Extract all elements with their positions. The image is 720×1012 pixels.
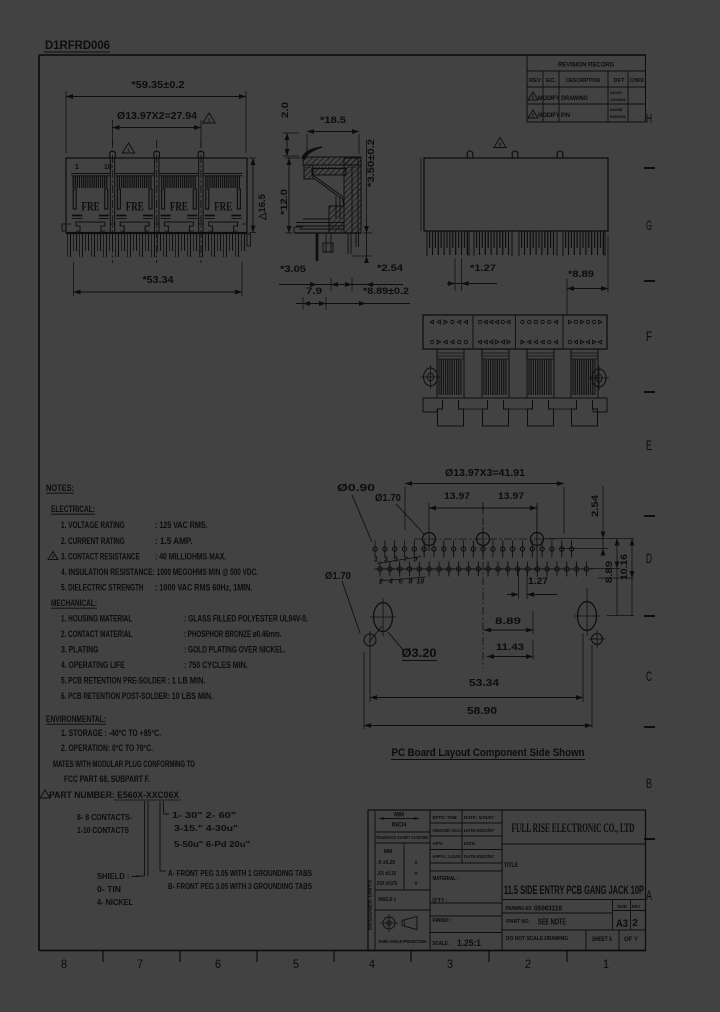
- svg-text:10: 10: [104, 164, 112, 171]
- svg-text:1-10 CONTACTS: 1-10 CONTACTS: [77, 826, 130, 835]
- svg-text:DESCRIPTION: DESCRIPTION: [566, 78, 600, 84]
- svg-text:FRE: FRE: [126, 200, 144, 214]
- svg-text:13.97: 13.97: [444, 491, 470, 502]
- svg-text:ENVIRONMENTAL:: ENVIRONMENTAL:: [46, 714, 106, 724]
- svg-text:*18.5: *18.5: [320, 115, 347, 126]
- svg-text:4: 4: [388, 579, 393, 586]
- svg-text:2: 2: [632, 918, 638, 929]
- svg-text:Q'TY :: Q'TY :: [433, 898, 448, 904]
- svg-text:ANGIE: ANGIE: [610, 107, 623, 112]
- svg-text:*8.89±0.2: *8.89±0.2: [363, 286, 409, 297]
- svg-text:5: 5: [293, 959, 299, 971]
- svg-text:2: 2: [499, 142, 502, 147]
- svg-text:11.43: 11.43: [496, 642, 524, 653]
- svg-text:*8.89: *8.89: [568, 269, 594, 280]
- svg-text:△16.5: △16.5: [257, 193, 268, 221]
- svg-text:REV: REV: [529, 78, 542, 84]
- svg-text:DESIGNED UNITS: DESIGNED UNITS: [368, 880, 373, 930]
- svg-text:7: 7: [137, 959, 143, 971]
- svg-text:CHKD: CHKD: [630, 78, 644, 84]
- svg-text:B- FRONT PEG 3.05 WITH 3 GROUN: B- FRONT PEG 3.05 WITH 3 GROUNDING TABS: [168, 882, 313, 891]
- svg-text:G: G: [646, 218, 652, 233]
- svg-text:*3.50±0.2: *3.50±0.2: [366, 139, 377, 187]
- svg-text:Ø0.90: Ø0.90: [337, 482, 375, 494]
- svg-text:1: 1: [208, 118, 211, 123]
- svg-text:D: D: [646, 551, 652, 566]
- svg-text:8.89: 8.89: [495, 616, 521, 627]
- svg-text:1: 1: [75, 164, 79, 171]
- svg-text:5-50u" 6-Pd 20u": 5-50u" 6-Pd 20u": [174, 840, 250, 849]
- svg-text:1. VOLTAGE RATING: 1. VOLTAGE RATING: [61, 520, 125, 530]
- svg-text:: 1000 VAC RMS 60Hz, 1MIN.: : 1000 VAC RMS 60Hz, 1MIN.: [155, 583, 253, 593]
- svg-text:DO NOT SCALE DRAWING: DO NOT SCALE DRAWING: [506, 936, 568, 942]
- svg-text:THIRD ANGLE PROJECTION: THIRD ANGLE PROJECTION: [378, 939, 426, 944]
- svg-text:FULL RISE ELECTRONIC CO., LTD: FULL RISE ELECTRONIC CO., LTD: [512, 821, 635, 835]
- svg-text:A3: A3: [616, 918, 628, 930]
- svg-text:11/04/04: 11/04/04: [610, 97, 626, 102]
- svg-text:53.34: 53.34: [469, 677, 499, 689]
- svg-text:05063118: 05063118: [534, 906, 562, 913]
- svg-text:REV: REV: [632, 904, 640, 909]
- svg-text:ELECTRICAL:: ELECTRICAL:: [51, 504, 95, 514]
- svg-text:SEE NOTE: SEE NOTE: [538, 917, 566, 927]
- svg-text:*2.54: *2.54: [377, 263, 404, 274]
- svg-text:D1RFRD006: D1RFRD006: [45, 38, 110, 52]
- svg-text:: 750 CYCLES MIN.: : 750 CYCLES MIN.: [184, 660, 248, 670]
- svg-text:SHIELD : —: SHIELD : —: [97, 872, 139, 881]
- svg-text:8: 8: [409, 579, 413, 586]
- svg-text:8.89: 8.89: [604, 561, 614, 583]
- svg-text:58.90: 58.90: [467, 705, 497, 717]
- svg-text:PC Board Layout Component Side: PC Board Layout Component Side Shown: [392, 747, 585, 759]
- svg-text:1: 1: [374, 557, 378, 564]
- svg-text:FCC PART 68, SUBPART F.: FCC PART 68, SUBPART F.: [64, 774, 150, 784]
- svg-text:: 1.5 AMP.: : 1.5 AMP.: [155, 536, 193, 546]
- svg-text:A- FRONT PEG 3.05 WITH 1 GROUN: A- FRONT PEG 3.05 WITH 1 GROUNDING TABS: [168, 869, 313, 878]
- svg-text:7: 7: [404, 557, 409, 564]
- svg-text:4: 4: [369, 959, 376, 971]
- svg-text:.XX ±0.15: .XX ±0.15: [377, 871, 396, 877]
- svg-text:13.97: 13.97: [498, 491, 524, 502]
- svg-text:11.5 SIDE ENTRY PCB GANG JACK: 11.5 SIDE ENTRY PCB GANG JACK 10P: [504, 885, 644, 897]
- svg-text:1: 1: [603, 959, 609, 971]
- svg-text:2. CURRENT RATING: 2. CURRENT RATING: [61, 536, 125, 546]
- svg-text:1. HOUSING MATERIAL: 1. HOUSING MATERIAL: [61, 614, 133, 624]
- svg-text:ANGLE ±: ANGLE ±: [378, 897, 396, 903]
- svg-text:/PART NO.: /PART NO.: [506, 919, 530, 925]
- svg-text:1 LB MIN.: 1 LB MIN.: [172, 676, 206, 686]
- svg-text:INCH: INCH: [392, 823, 407, 829]
- svg-text:Ø3.20: Ø3.20: [402, 648, 437, 660]
- svg-text:APPVL: LOUIS: APPVL: LOUIS: [433, 854, 462, 860]
- svg-text:2: 2: [525, 959, 531, 971]
- svg-text:*3.05: *3.05: [280, 264, 307, 275]
- svg-text:DRAWING NO.: DRAWING NO.: [506, 906, 533, 912]
- svg-text:REVISION RECORD: REVISION RECORD: [558, 62, 614, 69]
- svg-text:3. CONTACT RESISTANCE: 3. CONTACT RESISTANCE: [61, 552, 140, 562]
- svg-text:*1.27: *1.27: [470, 263, 496, 274]
- svg-text:EC.: EC.: [546, 78, 557, 84]
- svg-text:A: A: [646, 888, 652, 903]
- svg-text:*12.0: *12.0: [279, 189, 290, 215]
- svg-text:±: ±: [414, 860, 417, 866]
- svg-text:.X ±0.25: .X ±0.25: [377, 860, 395, 866]
- svg-text:2: 2: [532, 113, 535, 118]
- svg-text:4. INSULATION RESISTANCE:: 4. INSULATION RESISTANCE:: [61, 567, 155, 577]
- svg-text:Ø13.97X2=27.94: Ø13.97X2=27.94: [117, 110, 197, 122]
- svg-text:: GOLD PLATING OVER NICKEL.: : GOLD PLATING OVER NICKEL.: [184, 645, 285, 655]
- svg-text:±: ±: [414, 871, 417, 877]
- svg-text:FRE: FRE: [82, 200, 100, 214]
- svg-text:2.54: 2.54: [590, 495, 600, 517]
- svg-text:5. DIELECTRIC STRENGTH: 5. DIELECTRIC STRENGTH: [61, 583, 144, 593]
- svg-text:10.16: 10.16: [619, 554, 629, 580]
- svg-text:±: ±: [414, 881, 417, 887]
- svg-text:1. STORAGE : -40°C TO +85°C.: 1. STORAGE : -40°C TO +85°C.: [61, 728, 161, 738]
- svg-text:: 40 MILLIOHMS MAX.: : 40 MILLIOHMS MAX.: [155, 552, 226, 562]
- svg-text:DATE:05/21/97: DATE:05/21/97: [464, 854, 494, 860]
- svg-text:DATE:05/21/97: DATE:05/21/97: [464, 828, 494, 834]
- svg-text:DATE: 5/21/97: DATE: 5/21/97: [464, 815, 494, 821]
- svg-text:0- TIN: 0- TIN: [97, 885, 121, 894]
- svg-text:MECHANICAL:: MECHANICAL:: [51, 598, 97, 608]
- svg-text:E: E: [646, 438, 652, 453]
- svg-text:10: 10: [416, 579, 424, 586]
- svg-text:.XXX ±0.075: .XXX ±0.075: [376, 881, 397, 887]
- svg-text:Ø13.97X3=41.91: Ø13.97X3=41.91: [445, 467, 525, 479]
- svg-text:: 125 VAC RMS.: : 125 VAC RMS.: [155, 520, 208, 530]
- svg-text:1.27: 1.27: [528, 576, 548, 587]
- svg-text:6: 6: [215, 959, 221, 971]
- svg-text:Ø1.70: Ø1.70: [375, 492, 401, 504]
- svg-text:6: 6: [399, 579, 403, 586]
- svg-text:3-15." 4-30u": 3-15." 4-30u": [174, 824, 238, 833]
- svg-text:3: 3: [447, 959, 453, 971]
- svg-text:*53.34: *53.34: [143, 274, 174, 286]
- svg-text:2. OPERATION: 0°C TO 70°C.: 2. OPERATION: 0°C TO 70°C.: [61, 743, 153, 753]
- svg-text:5. PCB RETENTION PRE-SOLDER :: 5. PCB RETENTION PRE-SOLDER :: [61, 676, 170, 686]
- svg-text:CHECKED: SALLY: CHECKED: SALLY: [433, 828, 464, 834]
- svg-text:7.9: 7.9: [306, 286, 322, 297]
- svg-text:DFT: DFT: [614, 78, 625, 84]
- svg-text:8: 8: [61, 959, 67, 971]
- svg-text:MATERIAL :: MATERIAL :: [433, 876, 459, 882]
- svg-text:TITLE: TITLE: [504, 862, 519, 869]
- svg-text:TOLERANCE EXCEPT AS NOTED: TOLERANCE EXCEPT AS NOTED: [376, 835, 428, 840]
- svg-text:4- NICKEL: 4- NICKEL: [97, 898, 133, 907]
- svg-text:MODIFY P/N: MODIFY P/N: [538, 112, 570, 119]
- svg-text:05/04/08: 05/04/08: [610, 114, 626, 119]
- svg-text:MM: MM: [394, 813, 404, 819]
- svg-text:: GLASS FILLED POLYESTER UL94V: : GLASS FILLED POLYESTER UL94V-0.: [184, 614, 308, 624]
- svg-text:: PHOSPHOR BRONZE ø0.46mm.: : PHOSPHOR BRONZE ø0.46mm.: [184, 629, 282, 639]
- svg-text:10 LBS MIN.: 10 LBS MIN.: [172, 691, 213, 701]
- svg-text:6. PCB RETENTION POST-SOLDER:: 6. PCB RETENTION POST-SOLDER:: [61, 691, 170, 701]
- svg-text:3. PLATING: 3. PLATING: [61, 645, 99, 655]
- svg-text:MATES WITH MODULAR PLUG CONFOR: MATES WITH MODULAR PLUG CONFORMING TO: [53, 759, 195, 769]
- svg-text:1000 MEGOHMS MIN @ 500 VDC.: 1000 MEGOHMS MIN @ 500 VDC.: [157, 567, 258, 577]
- svg-text:Ø1.70: Ø1.70: [325, 570, 351, 582]
- svg-text:1: 1: [532, 95, 535, 100]
- svg-text:2. CONTACT MATERIAL: 2. CONTACT MATERIAL: [61, 629, 133, 639]
- svg-text:DATE:: DATE:: [464, 841, 476, 847]
- svg-text:FINISH :: FINISH :: [433, 918, 452, 924]
- svg-text:8- 8 CONTACTS-: 8- 8 CONTACTS-: [77, 813, 132, 822]
- svg-text:1- 30" 2- 60": 1- 30" 2- 60": [172, 811, 236, 820]
- svg-text:*59.35±0.2: *59.35±0.2: [132, 79, 185, 91]
- svg-text:SIZE: SIZE: [617, 904, 627, 909]
- svg-text:3: 3: [52, 554, 55, 559]
- svg-text:PART NUMBER: E560X-XXC06X: PART NUMBER: E560X-XXC06X: [49, 790, 179, 800]
- svg-text:MM: MM: [384, 849, 392, 855]
- svg-text:H: H: [646, 111, 652, 126]
- svg-text:FRE: FRE: [170, 200, 188, 214]
- svg-text:SHEET X: SHEET X: [592, 936, 612, 943]
- svg-text:C: C: [646, 669, 652, 684]
- svg-text:MODIFY DRAWING: MODIFY DRAWING: [538, 95, 588, 102]
- svg-text:1.25:1: 1.25:1: [457, 938, 481, 948]
- svg-text:NOTES:: NOTES:: [46, 483, 74, 493]
- svg-text:APV:: APV:: [433, 841, 444, 847]
- svg-text:1: 1: [127, 148, 130, 153]
- svg-text:B: B: [646, 776, 652, 791]
- svg-text:DAVID: DAVID: [610, 90, 622, 95]
- svg-text:OF Y: OF Y: [624, 936, 639, 943]
- svg-text:2: 2: [378, 579, 383, 586]
- svg-text:F: F: [646, 329, 652, 344]
- svg-text:SCALE :: SCALE :: [433, 941, 451, 947]
- svg-text:2.0: 2.0: [280, 102, 291, 118]
- svg-text:4. OPERATING LIFE: 4. OPERATING LIFE: [61, 660, 125, 670]
- svg-text:FRE: FRE: [214, 200, 232, 214]
- svg-text:DFTD: TOM: DFTD: TOM: [433, 815, 457, 821]
